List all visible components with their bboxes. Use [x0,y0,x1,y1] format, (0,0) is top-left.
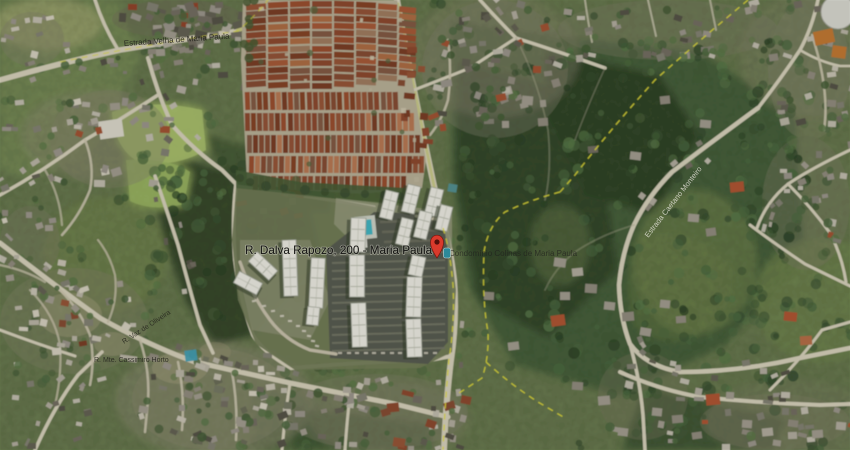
svg-text:Condomínio Colinas de Maria Pa: Condomínio Colinas de Maria Paula [449,249,578,258]
svg-text:R. Dalva Rapozo, 200 - Maria P: R. Dalva Rapozo, 200 - Maria Paula [245,244,433,257]
svg-text:R. Mte. Cassimiro Horto: R. Mte. Cassimiro Horto [94,357,169,364]
